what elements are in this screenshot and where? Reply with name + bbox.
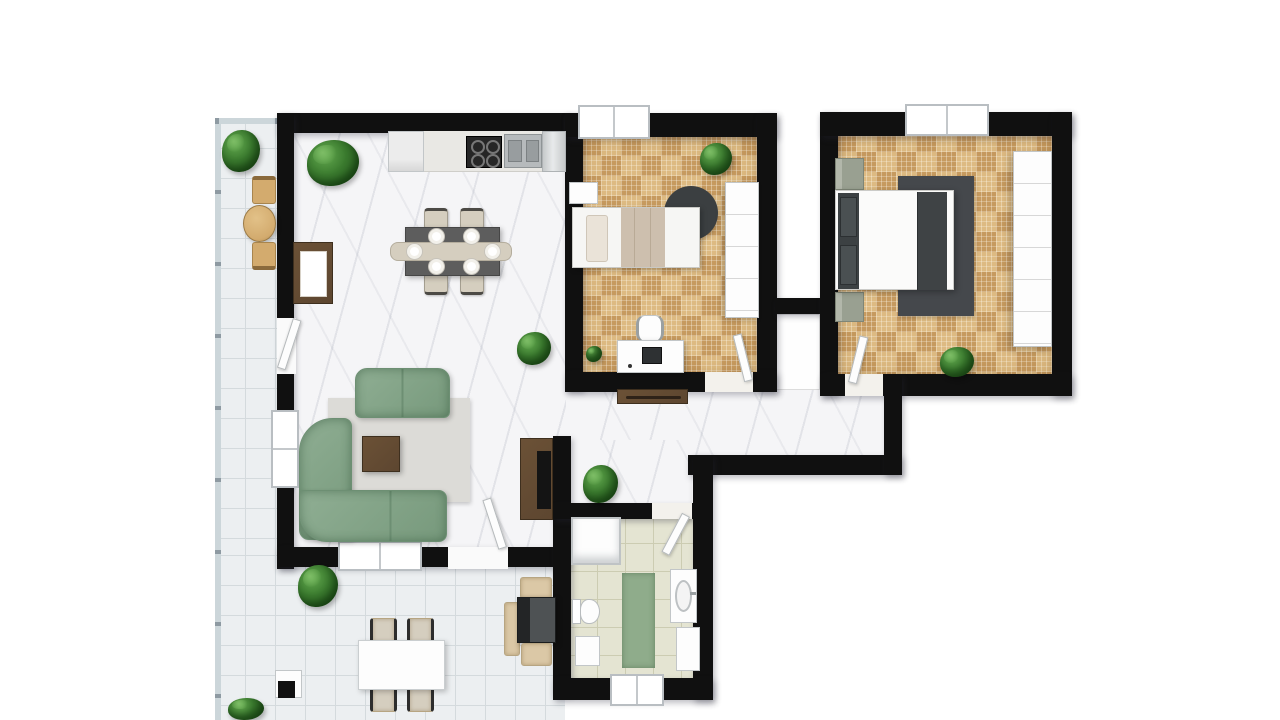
floor-plan-canvas: [0, 0, 1280, 720]
burner-icon: [486, 140, 500, 154]
vanity-faucet: [690, 592, 696, 595]
hall-console: [617, 389, 688, 404]
wall-tv-bathroom-left: [553, 436, 571, 694]
desk-chair: [636, 315, 664, 342]
nightstand-top: [835, 158, 864, 190]
bed-pillow-zone: [838, 193, 859, 289]
plate: [406, 243, 423, 260]
kitchen-sink: [504, 134, 542, 168]
toilet-bowl: [580, 599, 600, 624]
window-living-left: [271, 410, 299, 488]
glass-railing-left: [215, 118, 221, 720]
wardrobe-master: [1013, 151, 1052, 347]
sink-basin: [508, 140, 522, 162]
plate: [428, 228, 445, 245]
desk: [617, 340, 684, 373]
fridge: [388, 131, 424, 172]
bath-rug: [622, 573, 655, 668]
sofa-two-seat: [355, 368, 450, 418]
wardrobe-small: [725, 182, 759, 318]
sideboard: [293, 242, 333, 304]
bed-blanket: [621, 208, 665, 267]
vanity: [670, 569, 697, 623]
bistro-table: [243, 205, 276, 242]
double-bed: [835, 190, 954, 290]
single-bed: [572, 207, 700, 268]
burner-icon: [471, 140, 485, 154]
wall-niche-top: [775, 298, 822, 314]
wall-bedroom-master-right: [1052, 112, 1072, 396]
bed-blanket-dark: [917, 192, 947, 290]
sofa-corner-horizontal: [299, 490, 447, 542]
kitchen-end-unit: [542, 131, 566, 172]
burner-icon: [471, 154, 485, 168]
sideboard-top: [300, 251, 327, 297]
plate: [428, 258, 445, 275]
bistro-chair-top: [252, 176, 276, 204]
wall-living-top: [277, 113, 569, 133]
bistro-chair-bottom: [252, 242, 276, 270]
glass-railing-top: [215, 118, 281, 124]
bed-pillow: [840, 197, 857, 237]
tv: [537, 451, 551, 509]
stool-tray: [278, 681, 295, 698]
vanity-basin: [675, 580, 692, 612]
desk-mouse: [628, 364, 632, 368]
window-living-bottom: [338, 541, 422, 571]
vanity-cabinet: [676, 627, 700, 671]
bed-pillow: [586, 215, 608, 262]
plate: [463, 258, 480, 275]
bed-pillow: [840, 245, 857, 285]
wall-bedroom-small-right: [757, 113, 777, 392]
plate: [484, 243, 501, 260]
outdoor-dining-table: [358, 640, 445, 690]
closet-niche-floor: [776, 314, 820, 390]
dining-chair: [424, 273, 448, 295]
nightstand-bottom: [835, 292, 864, 322]
plate: [463, 228, 480, 245]
grill: [517, 597, 556, 643]
window-bathroom: [610, 674, 664, 706]
shower: [571, 517, 621, 565]
grill-seat-bottom: [521, 643, 552, 666]
tv-stand: [520, 438, 553, 520]
coffee-table: [362, 436, 400, 472]
bed-head-shelf: [569, 182, 598, 204]
burner-icon: [486, 154, 500, 168]
wall-hallway-right: [884, 374, 902, 475]
wall-hallway-bottom: [688, 455, 902, 475]
bath-cabinet-small: [575, 636, 600, 666]
window-bedroom-master: [905, 104, 989, 136]
monitor: [642, 347, 662, 364]
console-handle: [626, 396, 681, 399]
wall-living-bottom: [277, 547, 569, 567]
door-opening-terrace: [448, 547, 508, 569]
window-bedroom-small: [578, 105, 650, 139]
dining-chair: [460, 273, 484, 295]
grill-seat-top: [520, 577, 552, 599]
cooktop: [466, 136, 502, 168]
sink-basin: [526, 140, 539, 162]
side-stool: [275, 670, 302, 698]
